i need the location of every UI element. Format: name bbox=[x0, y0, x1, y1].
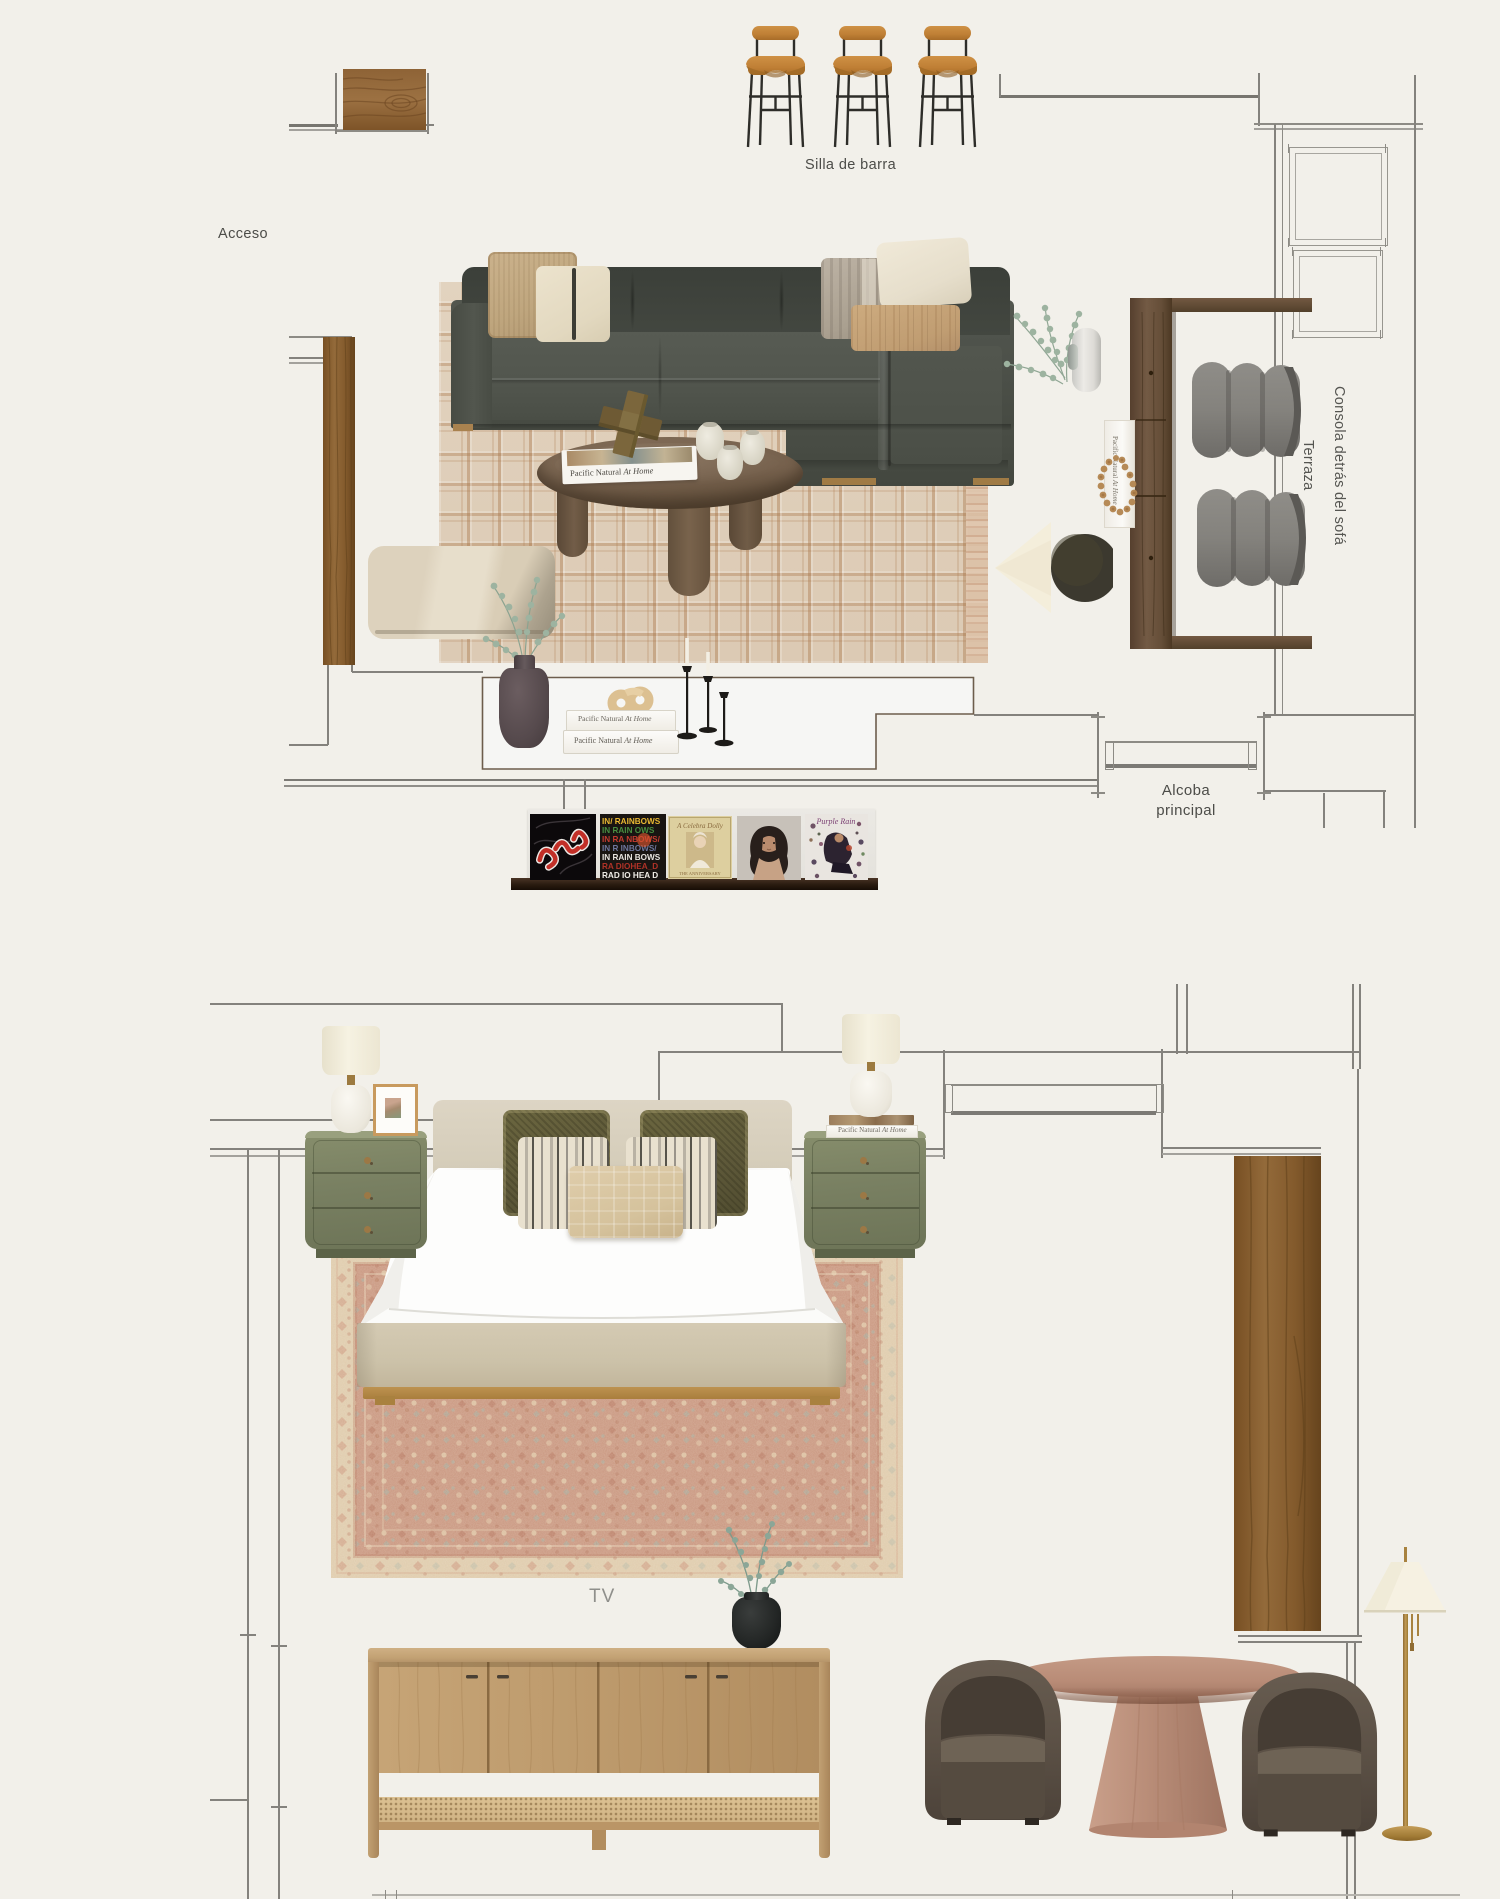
svg-text:RAD IO HEA D: RAD IO HEA D bbox=[602, 871, 658, 880]
svg-text:IN RA NBOWS/: IN RA NBOWS/ bbox=[602, 835, 661, 844]
svg-text:IN RAIN BOWS: IN RAIN BOWS bbox=[602, 853, 661, 862]
svg-text:Purple Rain: Purple Rain bbox=[816, 817, 856, 826]
svg-text:A Celebra Dolly: A Celebra Dolly bbox=[676, 822, 724, 830]
svg-text:IN R INBOWS/: IN R INBOWS/ bbox=[602, 844, 657, 853]
svg-text:RA DIOHEA_D: RA DIOHEA_D bbox=[602, 862, 658, 871]
svg-text:THE ANNIVERSARY: THE ANNIVERSARY bbox=[679, 871, 721, 876]
svg-text:IN/ RAINBOWS: IN/ RAINBOWS bbox=[602, 817, 661, 826]
